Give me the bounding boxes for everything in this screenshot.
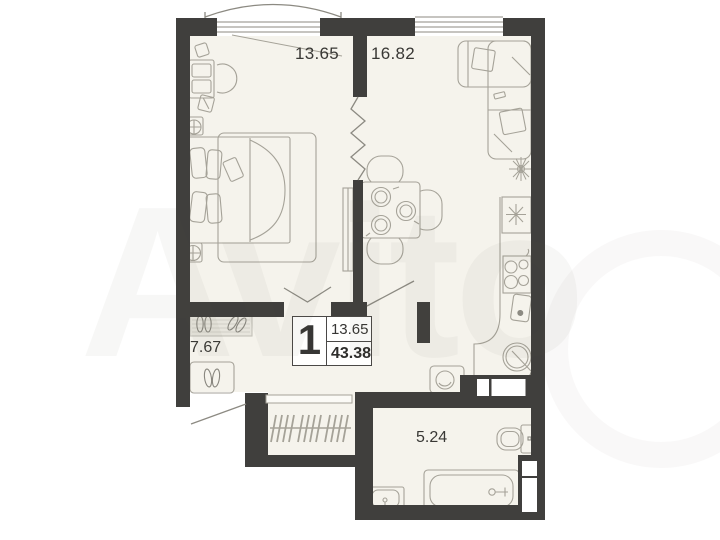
balcony-arc: [205, 5, 341, 19]
bedroom-window: [217, 18, 320, 36]
floor-plan-screenshot: 13.65 16.82 7.67 5.24 1 13.65 43.38 Avit…: [0, 0, 720, 540]
hallway-area-label: 7.67: [190, 339, 221, 357]
entrance-door: [191, 404, 246, 424]
rooms-count: 1: [293, 317, 326, 365]
closet-sliding-door: [266, 395, 352, 403]
floor-plan-drawing: [0, 0, 720, 540]
bedroom-area-label: 13.65: [295, 44, 339, 64]
bathroom-area-label: 5.24: [416, 429, 447, 447]
living-kitchen-area-label: 16.82: [371, 44, 415, 64]
duct-shaft: [522, 461, 537, 512]
living-area-value: 13.65: [327, 317, 371, 341]
unit-info-box: 1 13.65 43.38: [292, 316, 372, 366]
total-area-value: 43.38: [327, 341, 371, 365]
unit-areas: 13.65 43.38: [326, 317, 371, 365]
dining-table: [361, 182, 420, 238]
bathroom-door-opening: [477, 379, 526, 396]
living-window: [415, 14, 503, 36]
